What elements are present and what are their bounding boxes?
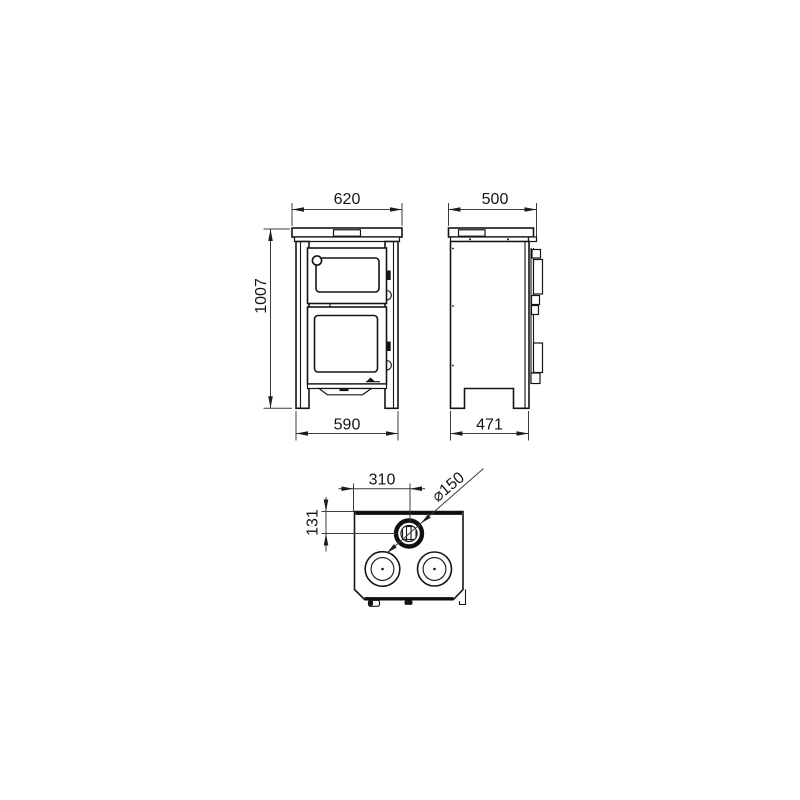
dim-front-width: 620 — [292, 191, 402, 226]
dim-side-leg-span-label: 471 — [476, 417, 503, 434]
dim-front-width-label: 620 — [334, 191, 361, 208]
lower-hinge — [387, 342, 391, 352]
side-plate-tab — [459, 230, 486, 236]
door-knob-icon — [312, 256, 321, 265]
front-plate-tab — [334, 230, 361, 236]
dim-overall-height-label: 1007 — [253, 278, 270, 314]
dim-overall-height: 1007 — [253, 229, 292, 408]
front-view — [292, 228, 402, 408]
door-hardware — [531, 248, 543, 384]
dim-front-leg-span: 590 — [296, 411, 398, 441]
side-body — [451, 242, 530, 409]
foot-center — [405, 600, 413, 605]
dim-side-leg-span: 471 — [451, 411, 529, 441]
upper-hinge — [387, 271, 391, 281]
front-base-band — [308, 384, 387, 389]
dim-depth-label: 500 — [482, 191, 509, 208]
side-view — [449, 228, 543, 408]
front-top-plate-band — [295, 237, 400, 242]
dim-flue-offset-y-label: 131 — [305, 509, 322, 536]
burner-right — [418, 552, 452, 586]
dim-flue-offset-x-label: 310 — [369, 472, 396, 489]
stove-dimension-drawing: 620 500 1007 590 — [0, 0, 800, 800]
top-view — [355, 512, 466, 607]
page: 620 500 1007 590 — [0, 0, 800, 800]
dim-front-leg-span-label: 590 — [334, 417, 361, 434]
